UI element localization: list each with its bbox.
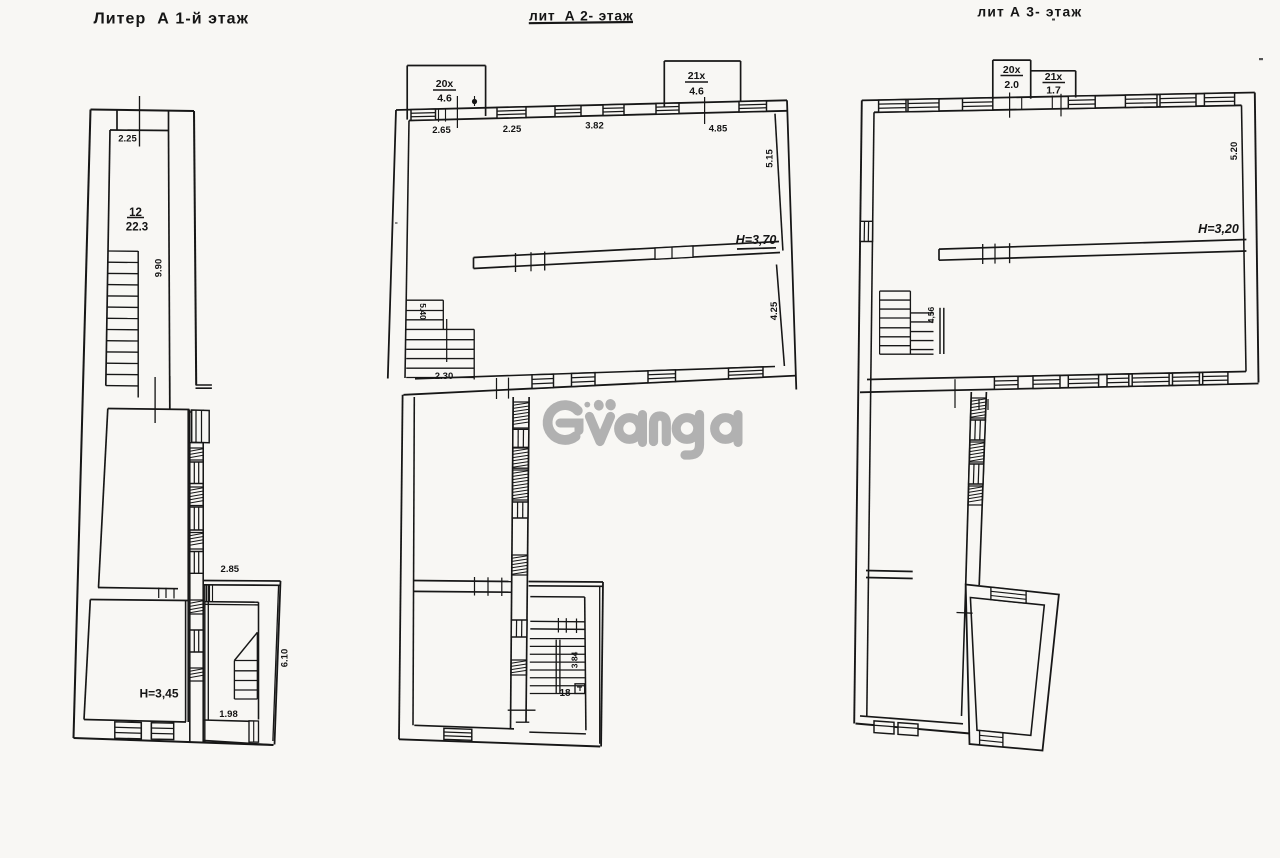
svg-text:5.15: 5.15 — [765, 149, 776, 168]
svg-text:21x: 21x — [1045, 71, 1063, 83]
svg-text:20x: 20x — [436, 78, 454, 90]
svg-text:5.20: 5.20 — [1229, 142, 1240, 161]
svg-text:2.0: 2.0 — [1004, 79, 1019, 91]
svg-text:2.25: 2.25 — [118, 134, 137, 145]
svg-text:H=3,20: H=3,20 — [1198, 222, 1239, 236]
svg-text:4.6: 4.6 — [689, 86, 704, 98]
svg-text:20x: 20x — [1003, 64, 1021, 76]
svg-text:Литер А 1-й этаж: Литер А 1-й этаж — [94, 10, 250, 27]
svg-text:4,56: 4,56 — [926, 306, 936, 323]
svg-text:22.3: 22.3 — [126, 222, 148, 234]
svg-text:H=3,70: H=3,70 — [736, 233, 777, 247]
svg-text:2.85: 2.85 — [221, 564, 240, 575]
svg-text:2.65: 2.65 — [432, 125, 451, 136]
svg-text:лит А 2- этаж: лит А 2- этаж — [529, 8, 633, 23]
svg-text:9.90: 9.90 — [154, 259, 165, 278]
svg-text:5.40: 5.40 — [418, 303, 428, 320]
svg-text:3,84: 3,84 — [570, 651, 580, 668]
svg-text:лит А 3- этаж: лит А 3- этаж — [977, 4, 1082, 19]
svg-text:3.82: 3.82 — [585, 121, 604, 132]
svg-text:21x: 21x — [688, 70, 706, 82]
svg-text:4.25: 4.25 — [769, 301, 780, 320]
svg-text:1.7: 1.7 — [1046, 85, 1061, 97]
svg-text:2.25: 2.25 — [503, 124, 522, 135]
svg-text:1.98: 1.98 — [219, 709, 238, 720]
svg-text:2.30: 2.30 — [435, 371, 454, 382]
svg-text:18: 18 — [559, 688, 571, 699]
svg-text:H=3,45: H=3,45 — [139, 687, 178, 701]
svg-text:4.6: 4.6 — [437, 93, 452, 105]
svg-text:4.85: 4.85 — [709, 124, 728, 135]
svg-text:6.10: 6.10 — [280, 649, 291, 668]
